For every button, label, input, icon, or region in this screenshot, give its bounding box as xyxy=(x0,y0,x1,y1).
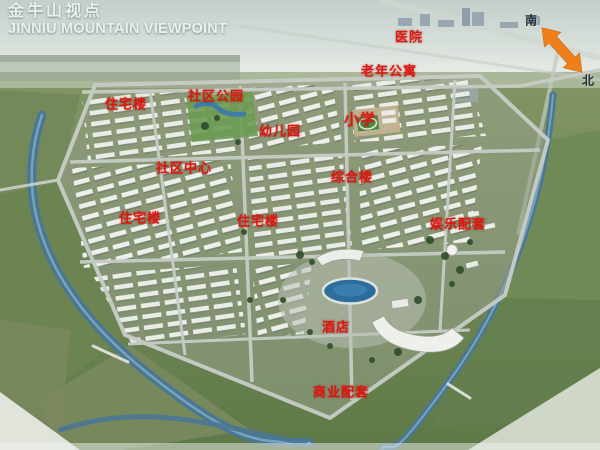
label-community-center: 社区中心 xyxy=(156,158,212,177)
label-residential-1: 住宅楼 xyxy=(105,94,147,113)
label-complex-building: 综合楼 xyxy=(331,167,373,186)
label-entertainment: 娱乐配套 xyxy=(430,214,486,233)
label-primary-school: 小学 xyxy=(344,109,376,130)
compass-south-label: 南 xyxy=(525,12,537,29)
compass-north-label: 北 xyxy=(582,72,594,89)
viewpoint-title: 金牛山视点 JINNIU MOUNTAIN VIEWPOINT xyxy=(8,3,227,38)
aerial-masterplan-view: 金牛山视点 JINNIU MOUNTAIN VIEWPOINT 南 北 医院 老… xyxy=(0,0,600,450)
label-residential-2: 住宅楼 xyxy=(119,208,161,227)
bottom-haze xyxy=(0,443,600,450)
label-residential-3: 住宅楼 xyxy=(237,211,279,230)
viewpoint-title-en: JINNIU MOUNTAIN VIEWPOINT xyxy=(8,21,227,38)
label-community-park: 社区公园 xyxy=(188,86,244,105)
aerial-rendering xyxy=(0,0,600,450)
label-commercial: 商业配套 xyxy=(313,382,369,401)
viewpoint-title-zh: 金牛山视点 xyxy=(8,3,227,21)
label-kindergarten: 幼儿园 xyxy=(259,121,301,140)
label-hotel: 酒店 xyxy=(322,317,350,336)
label-senior-apartments: 老年公寓 xyxy=(361,61,417,80)
label-hospital: 医院 xyxy=(395,27,423,46)
